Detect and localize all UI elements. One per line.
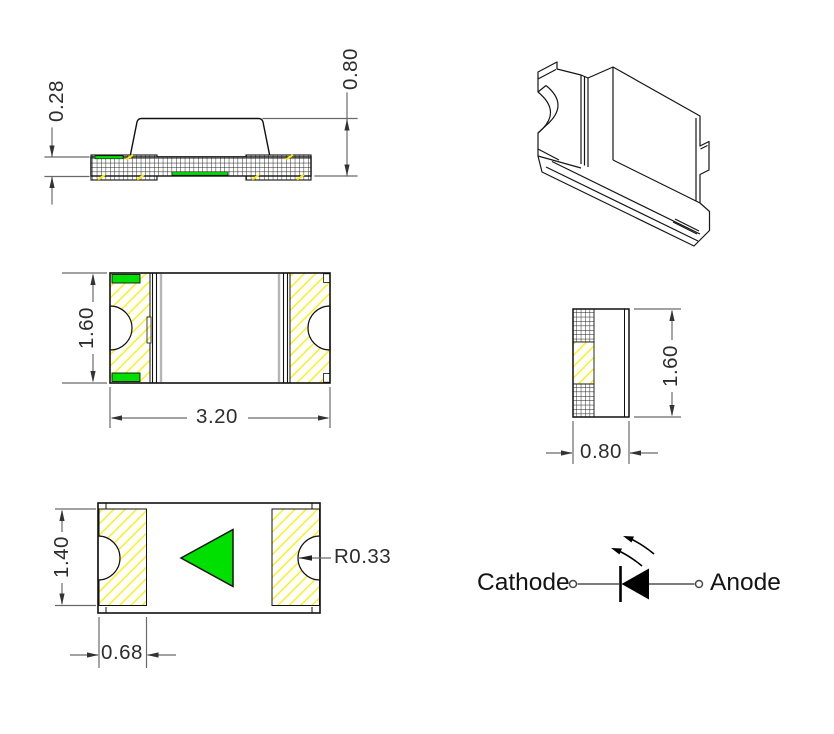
green-mark-top <box>95 156 123 159</box>
cathode-label: Cathode <box>477 570 570 596</box>
anode-terminal-dot <box>696 581 703 588</box>
dim-label-substrate-height: 0.28 <box>46 61 68 141</box>
dim-label-pad-height: 1.40 <box>51 517 73 597</box>
green-corner-bottom <box>112 373 140 382</box>
polarity-schematic <box>570 536 703 602</box>
dim-label-total-height: 0.80 <box>340 29 362 109</box>
led-package-drawing: 0.28 0.80 1.60 3.20 1.40 0.68 R0.33 1.60… <box>0 0 834 734</box>
cathode-terminal-dot <box>570 581 577 588</box>
side-view <box>45 93 357 204</box>
dim-label-top-height: 1.60 <box>76 288 98 368</box>
terminal-top-section <box>573 309 594 342</box>
iso-silhouette <box>538 62 710 246</box>
light-arrows <box>611 536 654 566</box>
iso-view <box>538 62 710 246</box>
dim-label-end-height: 1.60 <box>660 326 682 406</box>
diode-triangle <box>622 569 650 600</box>
dim-label-end-width: 0.80 <box>561 441 641 463</box>
green-mark-bottom <box>172 172 228 175</box>
pad-middle-section <box>573 342 594 384</box>
terminal-bottom-section <box>573 384 594 417</box>
drawing-linework <box>0 0 834 734</box>
dim-label-notch-radius: R0.33 <box>334 546 414 568</box>
dim-label-pad-width: 0.68 <box>82 642 162 664</box>
dim-label-top-width: 3.20 <box>177 406 257 428</box>
lens-profile <box>130 119 270 158</box>
green-corner-top <box>112 275 140 284</box>
anode-label: Anode <box>710 570 781 596</box>
